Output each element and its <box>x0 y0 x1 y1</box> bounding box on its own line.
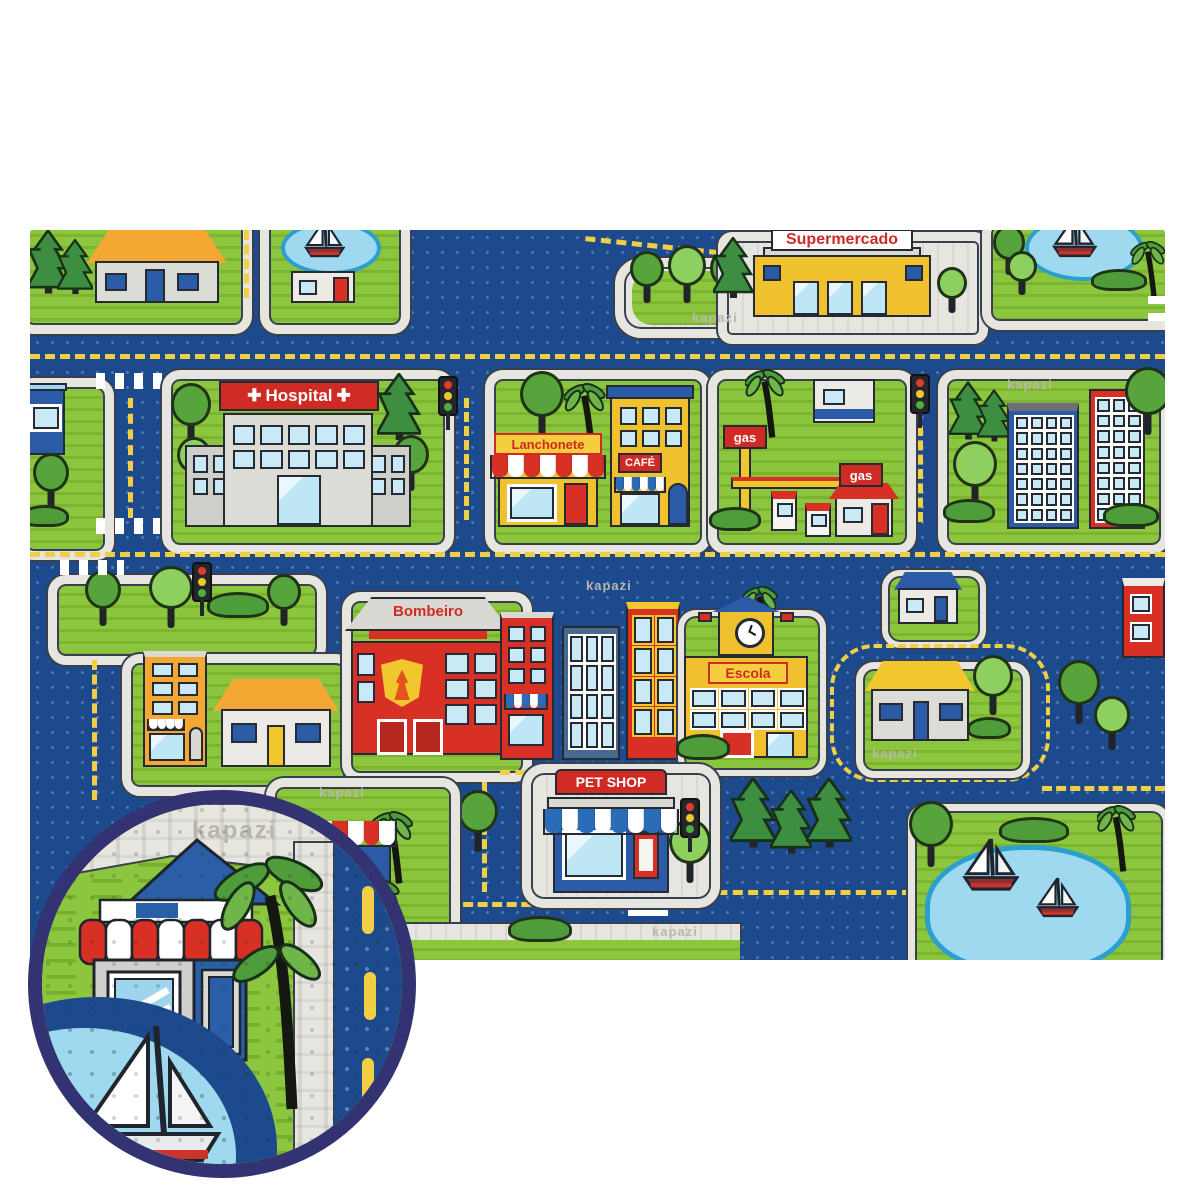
shed <box>291 271 355 303</box>
window <box>1097 430 1110 443</box>
block-food: Lanchonete CAFÉ <box>485 370 711 554</box>
cafe-roof <box>606 385 694 399</box>
awning-stripe <box>628 809 645 833</box>
window <box>1097 415 1110 428</box>
window <box>1016 478 1028 490</box>
brand-watermark: kapazi <box>319 785 365 800</box>
awning-stripe <box>644 809 661 833</box>
crosswalk <box>60 560 124 575</box>
window <box>634 679 652 705</box>
lane-marking <box>244 230 249 298</box>
brand-watermark: kapazi <box>586 578 632 593</box>
window <box>780 712 804 729</box>
block-top-lake <box>260 230 410 334</box>
door-panel <box>639 839 653 871</box>
brand-watermark: kapazi <box>692 310 738 325</box>
house-window <box>105 273 127 291</box>
hospital-sign-label: Hospital <box>265 386 332 406</box>
lane-marking <box>30 552 1165 557</box>
window <box>1132 624 1150 640</box>
inset-illustration: kapazi <box>42 804 402 1164</box>
window <box>751 690 775 707</box>
awning-stripe <box>648 477 656 491</box>
awning-stripe <box>506 694 514 708</box>
window <box>1046 448 1058 460</box>
pump-screen <box>777 503 793 517</box>
awning-stripe <box>624 477 632 491</box>
cafe-window <box>620 493 660 525</box>
snack-bar-sign: Lanchonete <box>494 433 602 455</box>
window <box>601 722 614 748</box>
window <box>657 617 675 643</box>
window <box>315 450 337 470</box>
tree <box>973 655 1013 715</box>
teal-building <box>562 626 620 760</box>
tree <box>1007 251 1037 295</box>
awning-stripe <box>578 809 595 833</box>
window <box>530 647 547 663</box>
brand-watermark: kapazi <box>652 924 698 939</box>
window <box>445 679 469 700</box>
window <box>1097 493 1110 506</box>
window <box>657 679 675 705</box>
window <box>570 636 583 662</box>
bush <box>967 717 1011 739</box>
blue-building <box>30 389 65 455</box>
window <box>634 709 652 735</box>
window <box>570 665 583 691</box>
window <box>474 653 498 674</box>
window <box>233 450 255 470</box>
window <box>357 681 375 704</box>
window <box>315 425 337 445</box>
window <box>474 679 498 700</box>
window <box>620 430 637 448</box>
window <box>1113 477 1126 490</box>
window <box>260 425 282 445</box>
inset-dots-overlay <box>42 804 402 1164</box>
bush <box>508 916 572 942</box>
window <box>1097 477 1110 490</box>
window <box>780 690 804 707</box>
gas-pump <box>805 503 831 537</box>
window <box>1031 448 1043 460</box>
window <box>391 478 406 496</box>
window <box>288 450 310 470</box>
awning <box>504 694 548 710</box>
bush <box>1103 503 1159 527</box>
hospital-entrance <box>277 475 321 525</box>
window <box>445 653 469 674</box>
window <box>1016 448 1028 460</box>
window <box>1128 477 1141 490</box>
window <box>1113 462 1126 475</box>
block-top-right-lake <box>982 230 1165 330</box>
window <box>721 690 745 707</box>
block-small-house <box>882 570 986 648</box>
lake <box>925 845 1131 960</box>
tree <box>171 383 211 445</box>
awning-stripe <box>492 455 508 477</box>
window <box>1046 432 1058 444</box>
house <box>95 261 219 303</box>
garage-door <box>377 719 407 755</box>
palm-tree <box>1097 805 1151 873</box>
flag <box>698 612 712 622</box>
house-door <box>913 701 929 741</box>
gas-sign-label: gas <box>850 468 872 483</box>
window <box>152 682 173 696</box>
awning-stripe <box>640 477 648 491</box>
window <box>152 663 173 677</box>
edge-building <box>1122 578 1165 658</box>
window <box>763 265 781 281</box>
window <box>288 425 310 445</box>
cafe-sign-label: CAFÉ <box>625 457 655 469</box>
window <box>1046 478 1058 490</box>
sailboat <box>1035 875 1079 919</box>
lane-marking <box>464 398 469 520</box>
windows <box>357 653 375 703</box>
bush <box>709 507 761 531</box>
window <box>1046 463 1058 475</box>
tree <box>149 566 193 628</box>
window <box>1113 399 1126 412</box>
window <box>508 647 525 663</box>
window <box>1113 430 1126 443</box>
awning-stripe <box>158 719 167 729</box>
lane-marking <box>918 426 923 522</box>
gas-sign: gas <box>839 463 883 487</box>
awning-stripe <box>530 694 538 708</box>
windows <box>634 617 674 735</box>
snack-bar-building: Lanchonete <box>498 435 598 527</box>
block-school: Escola <box>678 610 826 776</box>
door <box>189 727 203 761</box>
awning-stripe <box>595 809 612 833</box>
fire-station-label: Bombeiro <box>351 603 505 620</box>
window <box>905 265 923 281</box>
fire-station-building <box>351 641 505 755</box>
glass-door <box>861 281 887 315</box>
window <box>601 665 614 691</box>
window <box>1031 493 1043 505</box>
shop-window <box>149 733 185 761</box>
red-tall-building <box>626 602 680 760</box>
hospital-wing-windows <box>371 455 405 495</box>
awning-stripe <box>562 809 579 833</box>
window <box>642 430 659 448</box>
small-house <box>898 588 958 624</box>
window <box>371 478 386 496</box>
shuttered-window <box>879 703 903 721</box>
window <box>1060 493 1072 505</box>
window <box>1060 463 1072 475</box>
window <box>193 455 208 473</box>
window <box>751 712 775 729</box>
window <box>665 407 682 425</box>
window <box>657 648 675 674</box>
shop-awning <box>147 719 185 731</box>
snack-bar-awning <box>490 455 606 479</box>
school-sign: Escola <box>708 662 788 684</box>
window <box>1031 478 1043 490</box>
block-supermarket: Supermercado <box>718 232 988 344</box>
awning-stripe <box>524 455 540 477</box>
awning-stripe <box>632 477 640 491</box>
pet-shop-awning <box>543 809 679 835</box>
cornice <box>547 797 675 809</box>
kiosk-stripe <box>815 409 873 419</box>
window <box>586 636 599 662</box>
window <box>33 407 59 429</box>
glass-door <box>827 281 853 315</box>
window <box>1031 463 1043 475</box>
window <box>1016 417 1028 429</box>
red-building <box>500 612 554 760</box>
pet-shop-sign-label: PET SHOP <box>576 774 647 790</box>
window <box>1060 417 1072 429</box>
school-gable <box>718 608 774 656</box>
awning-stripe <box>149 719 158 729</box>
brand-watermark: kapazi <box>872 746 918 761</box>
pet-shop-door <box>633 831 659 879</box>
door <box>871 503 889 535</box>
medical-cross-icon: ✚ <box>247 386 261 406</box>
awning-stripe <box>538 694 546 708</box>
hospital-wing-windows <box>193 455 227 495</box>
awning-stripe <box>556 455 572 477</box>
shop-door <box>564 483 588 525</box>
window <box>1031 417 1043 429</box>
house-roof <box>87 230 227 263</box>
cafe-awning <box>614 477 666 493</box>
pine-tree <box>806 778 852 848</box>
window <box>343 450 365 470</box>
window <box>1016 432 1028 444</box>
windows <box>152 663 198 715</box>
window <box>1060 432 1072 444</box>
window <box>1113 415 1126 428</box>
flag <box>780 612 794 622</box>
supermarket-sign-label: Supermercado <box>786 231 898 249</box>
awning-stripe <box>545 809 562 833</box>
traffic-light <box>680 798 700 838</box>
window <box>1132 596 1150 612</box>
shuttered-window <box>231 723 257 743</box>
window <box>843 507 863 523</box>
window <box>1060 478 1072 490</box>
window <box>692 690 716 707</box>
pine-tree <box>977 389 1011 443</box>
tree <box>953 441 997 507</box>
window <box>343 425 365 445</box>
house-roof <box>213 679 339 711</box>
brand-watermark: kapazi <box>1007 377 1053 392</box>
tower-windows <box>1016 417 1072 521</box>
fire-shield-emblem <box>381 659 423 707</box>
magnifier-inset: kapazi <box>28 790 416 1178</box>
window <box>178 701 199 715</box>
window <box>508 668 525 684</box>
window <box>152 701 173 715</box>
window <box>371 455 386 473</box>
shop-window <box>510 487 554 519</box>
school-clock <box>735 618 765 648</box>
tree <box>630 251 664 303</box>
window <box>530 626 547 642</box>
bush <box>676 734 730 760</box>
windows <box>445 653 497 725</box>
shed-window <box>299 280 317 295</box>
cafe-sign: CAFÉ <box>618 453 662 473</box>
cafe-building: CAFÉ <box>610 389 690 527</box>
window <box>233 425 255 445</box>
lane-marking <box>30 354 1165 359</box>
cafe-windows <box>620 407 682 447</box>
window <box>1128 446 1141 459</box>
tree <box>937 267 967 313</box>
sailboat <box>961 835 1019 893</box>
window <box>357 653 375 676</box>
crosswalk <box>96 373 162 389</box>
pet-shop-window <box>565 833 623 877</box>
awning-stripe <box>508 455 524 477</box>
tree <box>1094 696 1130 750</box>
window <box>508 626 525 642</box>
window <box>1060 448 1072 460</box>
window <box>178 682 199 696</box>
tree <box>520 371 564 437</box>
traffic-light <box>910 374 930 414</box>
hospital-building <box>223 413 373 527</box>
house <box>221 709 331 767</box>
window <box>823 389 845 405</box>
window <box>1016 493 1028 505</box>
blue-tower <box>1007 403 1079 529</box>
window <box>1046 417 1058 429</box>
awning-stripe <box>522 694 530 708</box>
gas-sign-label: gas <box>734 430 756 445</box>
window <box>586 665 599 691</box>
lane-marking <box>128 398 133 518</box>
window <box>1016 509 1028 521</box>
window <box>445 704 469 725</box>
awning-stripe <box>656 477 664 491</box>
house-door <box>267 725 285 767</box>
awning-stripe <box>616 477 624 491</box>
tree <box>33 453 69 509</box>
awning-stripe <box>166 719 175 729</box>
gas-building <box>835 497 893 537</box>
medical-cross-icon: ✚ <box>337 386 351 406</box>
window <box>692 712 716 729</box>
pine-tree <box>713 237 753 299</box>
lane-marking <box>1042 786 1165 791</box>
window <box>1097 446 1110 459</box>
garage-door <box>413 719 443 755</box>
awning-stripe <box>540 455 556 477</box>
glass-door <box>793 281 819 315</box>
awning-stripe <box>364 821 380 845</box>
window <box>601 636 614 662</box>
orange-building <box>143 651 207 767</box>
tree <box>85 570 121 626</box>
window <box>601 694 614 720</box>
crosswalk <box>1148 296 1165 326</box>
shuttered-window <box>295 723 321 743</box>
window <box>721 712 745 729</box>
pine-tree <box>57 239 93 295</box>
window <box>178 663 199 677</box>
window <box>586 722 599 748</box>
awning-stripe <box>572 455 588 477</box>
tree <box>668 245 706 303</box>
crosswalk <box>96 518 162 534</box>
window <box>1031 432 1043 444</box>
house-window <box>177 273 199 291</box>
pump-screen <box>811 514 827 527</box>
windows <box>508 626 546 684</box>
lane-marking <box>92 660 97 800</box>
window <box>570 694 583 720</box>
house-door <box>145 269 165 303</box>
window <box>620 407 637 425</box>
tree <box>909 801 953 867</box>
window <box>530 668 547 684</box>
windows <box>692 690 804 728</box>
sailboat <box>303 230 345 259</box>
window <box>474 704 498 725</box>
tree <box>458 790 498 852</box>
awning-stripe <box>379 821 395 845</box>
window <box>1046 509 1058 521</box>
window <box>642 407 659 425</box>
supermarket-sign: Supermercado <box>771 230 913 251</box>
block-gas-station: gas gas <box>708 370 916 554</box>
traffic-light <box>192 562 212 602</box>
gas-pump <box>771 491 797 531</box>
hospital-sign: ✚ Hospital ✚ <box>219 381 379 411</box>
awning-stripe <box>514 694 522 708</box>
window <box>1113 446 1126 459</box>
awning <box>30 383 67 391</box>
window <box>193 478 208 496</box>
window <box>906 598 924 613</box>
window <box>634 648 652 674</box>
window <box>1060 509 1072 521</box>
house <box>871 689 969 741</box>
snack-bar-sign-label: Lanchonete <box>512 437 585 452</box>
window <box>586 694 599 720</box>
windows <box>570 636 614 748</box>
roof-stripe <box>369 631 487 639</box>
window <box>657 709 675 735</box>
window <box>1046 493 1058 505</box>
gas-kiosk <box>813 379 875 423</box>
cafe-door <box>668 483 688 525</box>
hospital-windows <box>233 425 365 469</box>
window <box>260 450 282 470</box>
glass-door <box>766 732 794 758</box>
window <box>634 617 652 643</box>
block-bottom-lake <box>908 804 1165 960</box>
window <box>1097 399 1110 412</box>
shed-door <box>333 277 349 303</box>
pine-tree <box>377 373 421 441</box>
bush <box>1091 269 1147 291</box>
bush <box>943 499 995 523</box>
